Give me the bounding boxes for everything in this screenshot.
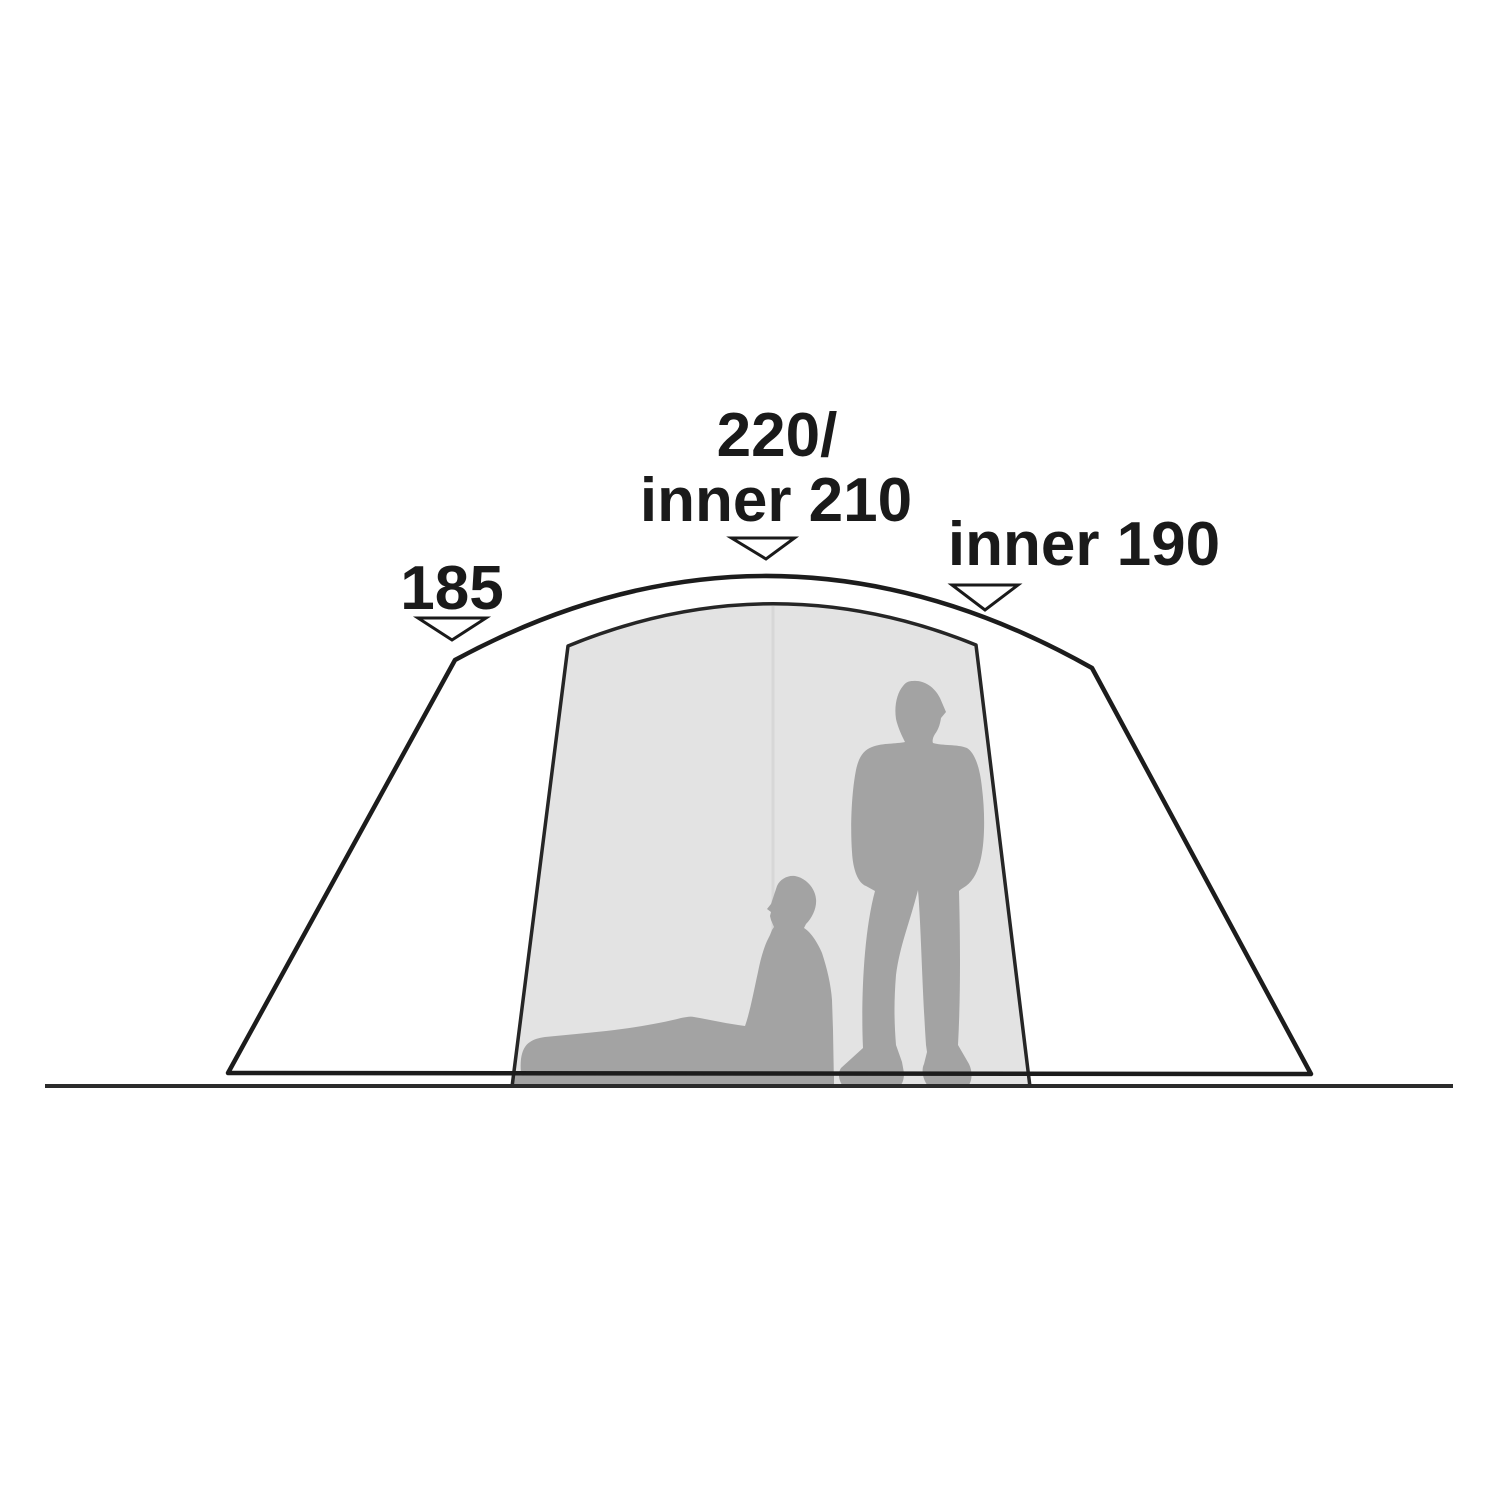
svg-text:inner 210: inner 210 — [640, 466, 912, 535]
svg-text:185: 185 — [400, 554, 503, 623]
svg-text:inner 190: inner 190 — [948, 510, 1220, 579]
svg-text:220/: 220/ — [717, 401, 838, 470]
